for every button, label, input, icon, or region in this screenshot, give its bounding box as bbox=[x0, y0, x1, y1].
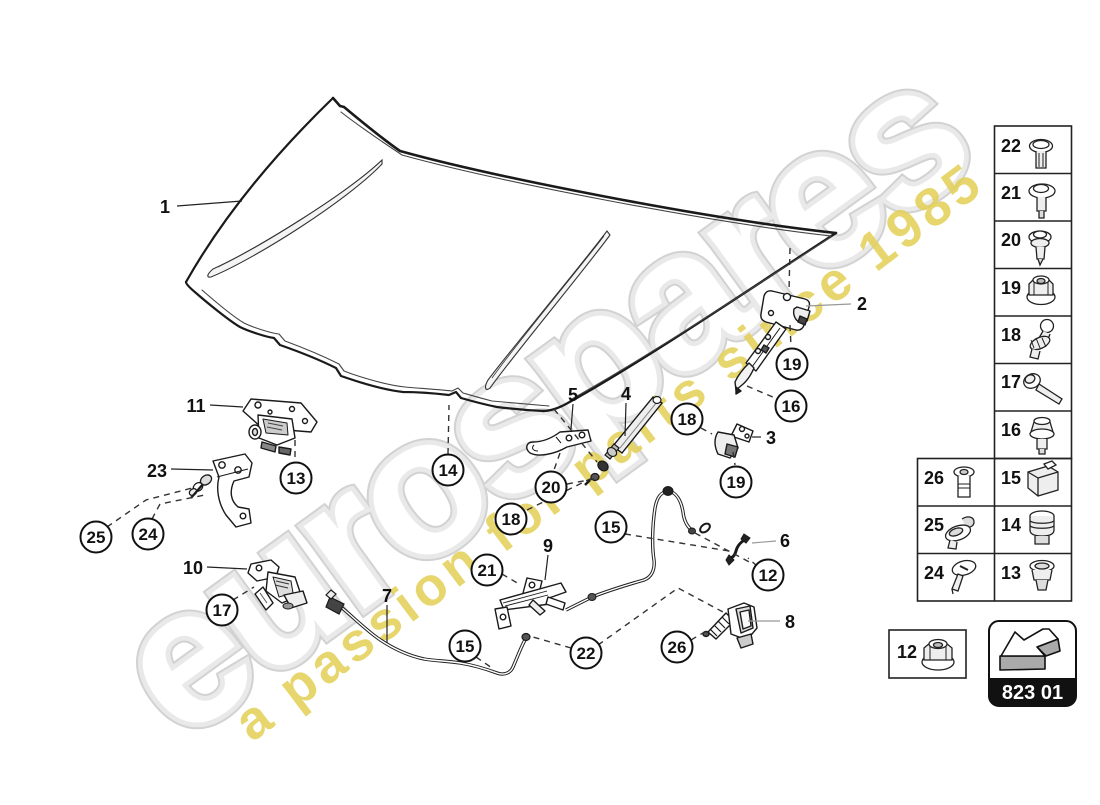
svg-text:10: 10 bbox=[183, 558, 203, 578]
svg-text:6: 6 bbox=[780, 531, 790, 551]
svg-text:7: 7 bbox=[382, 586, 392, 606]
svg-text:17: 17 bbox=[213, 601, 232, 620]
svg-text:12: 12 bbox=[759, 566, 778, 585]
svg-text:5: 5 bbox=[568, 385, 578, 405]
svg-text:2: 2 bbox=[857, 294, 867, 314]
svg-text:24: 24 bbox=[924, 563, 944, 583]
svg-text:26: 26 bbox=[668, 638, 687, 657]
svg-text:19: 19 bbox=[727, 473, 746, 492]
svg-text:13: 13 bbox=[287, 469, 306, 488]
svg-text:14: 14 bbox=[439, 461, 458, 480]
svg-text:20: 20 bbox=[1001, 230, 1021, 250]
svg-text:25: 25 bbox=[924, 515, 944, 535]
svg-text:18: 18 bbox=[678, 410, 697, 429]
svg-text:3: 3 bbox=[766, 428, 776, 448]
svg-text:26: 26 bbox=[924, 468, 944, 488]
svg-text:25: 25 bbox=[87, 528, 106, 547]
svg-text:15: 15 bbox=[456, 637, 475, 656]
svg-text:15: 15 bbox=[1001, 468, 1021, 488]
svg-text:4: 4 bbox=[621, 384, 631, 404]
svg-text:14: 14 bbox=[1001, 515, 1021, 535]
svg-text:16: 16 bbox=[1001, 420, 1021, 440]
svg-text:12: 12 bbox=[897, 642, 917, 662]
svg-text:24: 24 bbox=[139, 525, 158, 544]
svg-text:21: 21 bbox=[478, 561, 497, 580]
svg-text:1: 1 bbox=[160, 197, 170, 217]
svg-text:22: 22 bbox=[1001, 136, 1021, 156]
svg-text:823 01: 823 01 bbox=[1002, 682, 1063, 704]
svg-text:17: 17 bbox=[1001, 372, 1021, 392]
svg-text:15: 15 bbox=[602, 518, 621, 537]
svg-text:9: 9 bbox=[543, 536, 553, 556]
svg-text:11: 11 bbox=[186, 396, 205, 416]
svg-text:19: 19 bbox=[1001, 278, 1021, 298]
svg-text:18: 18 bbox=[1001, 325, 1021, 345]
svg-text:16: 16 bbox=[782, 397, 801, 416]
svg-text:13: 13 bbox=[1001, 563, 1021, 583]
svg-text:22: 22 bbox=[577, 644, 596, 663]
svg-text:21: 21 bbox=[1001, 183, 1021, 203]
svg-text:8: 8 bbox=[785, 612, 795, 632]
svg-text:18: 18 bbox=[502, 510, 521, 529]
svg-text:23: 23 bbox=[147, 461, 167, 481]
svg-text:19: 19 bbox=[783, 355, 802, 374]
svg-text:20: 20 bbox=[542, 478, 561, 497]
